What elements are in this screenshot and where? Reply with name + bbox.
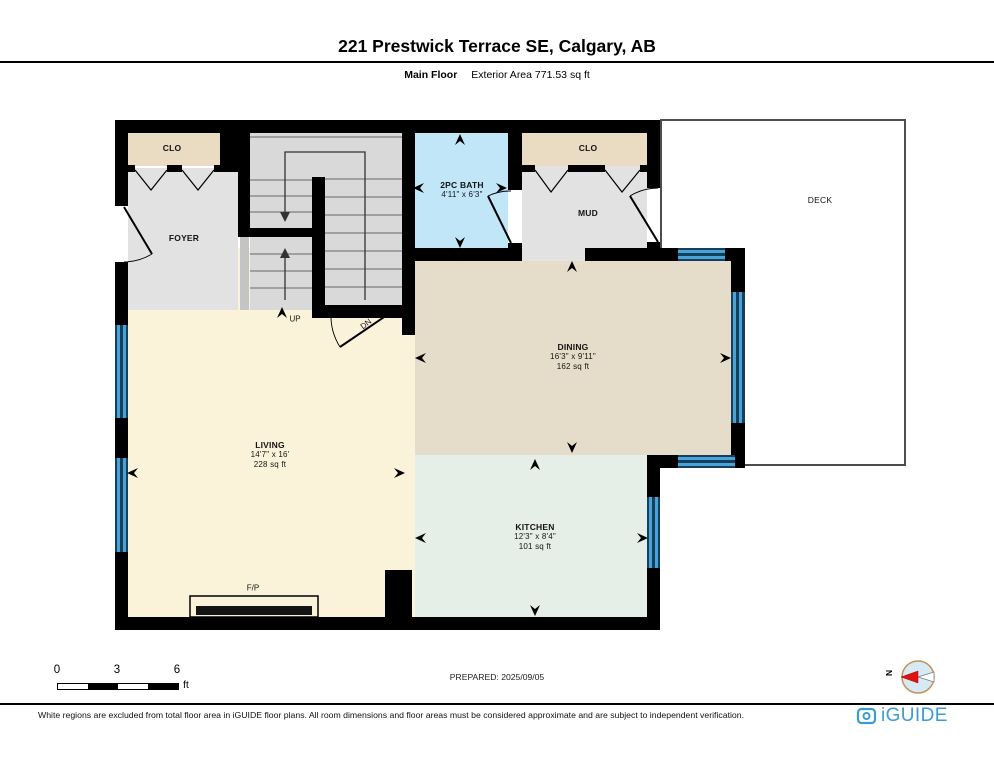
iguide-logo: iGUIDE <box>856 705 948 727</box>
prepared-date: PREPARED: 2025/09/05 <box>0 672 994 682</box>
label-fireplace: F/P <box>247 584 259 593</box>
north-label: N <box>884 670 894 676</box>
measurement-arrows <box>127 134 731 616</box>
bath-door <box>488 191 511 243</box>
label-dining: DINING 16'3" x 9'11" 162 sq ft <box>550 342 596 372</box>
label-closet-front: CLO <box>163 143 182 153</box>
footer-disclaimer: White regions are excluded from total fl… <box>38 710 848 720</box>
plan-linework <box>0 0 994 768</box>
stair-direction-arrows <box>280 152 365 300</box>
label-kitchen: KITCHEN 12'3" x 8'4" 101 sq ft <box>514 522 556 552</box>
scale-bar <box>57 683 179 690</box>
bifold-doors <box>135 170 640 192</box>
label-mud: MUD <box>578 208 598 218</box>
compass-icon <box>888 650 948 706</box>
basement-stair-door <box>331 313 390 347</box>
iguide-logo-icon <box>856 706 878 726</box>
mud-deck-door <box>630 188 658 242</box>
label-deck: DECK <box>808 195 832 205</box>
label-closet-mud: CLO <box>579 143 598 153</box>
entry-door <box>124 207 152 262</box>
iguide-logo-text: iGUIDE <box>881 705 948 727</box>
label-living: LIVING 14'7" x 16' 228 sq ft <box>251 440 290 470</box>
footer-divider <box>0 703 994 705</box>
label-bath: 2PC BATH 4'11" x 6'3" <box>440 180 483 200</box>
stair-treads <box>250 137 402 288</box>
label-stairs-up: UP <box>289 315 300 324</box>
label-foyer: FOYER <box>169 233 199 243</box>
fireplace <box>190 596 318 617</box>
floorplan-page: { "header": { "title": "221 Prestwick Te… <box>0 0 994 768</box>
